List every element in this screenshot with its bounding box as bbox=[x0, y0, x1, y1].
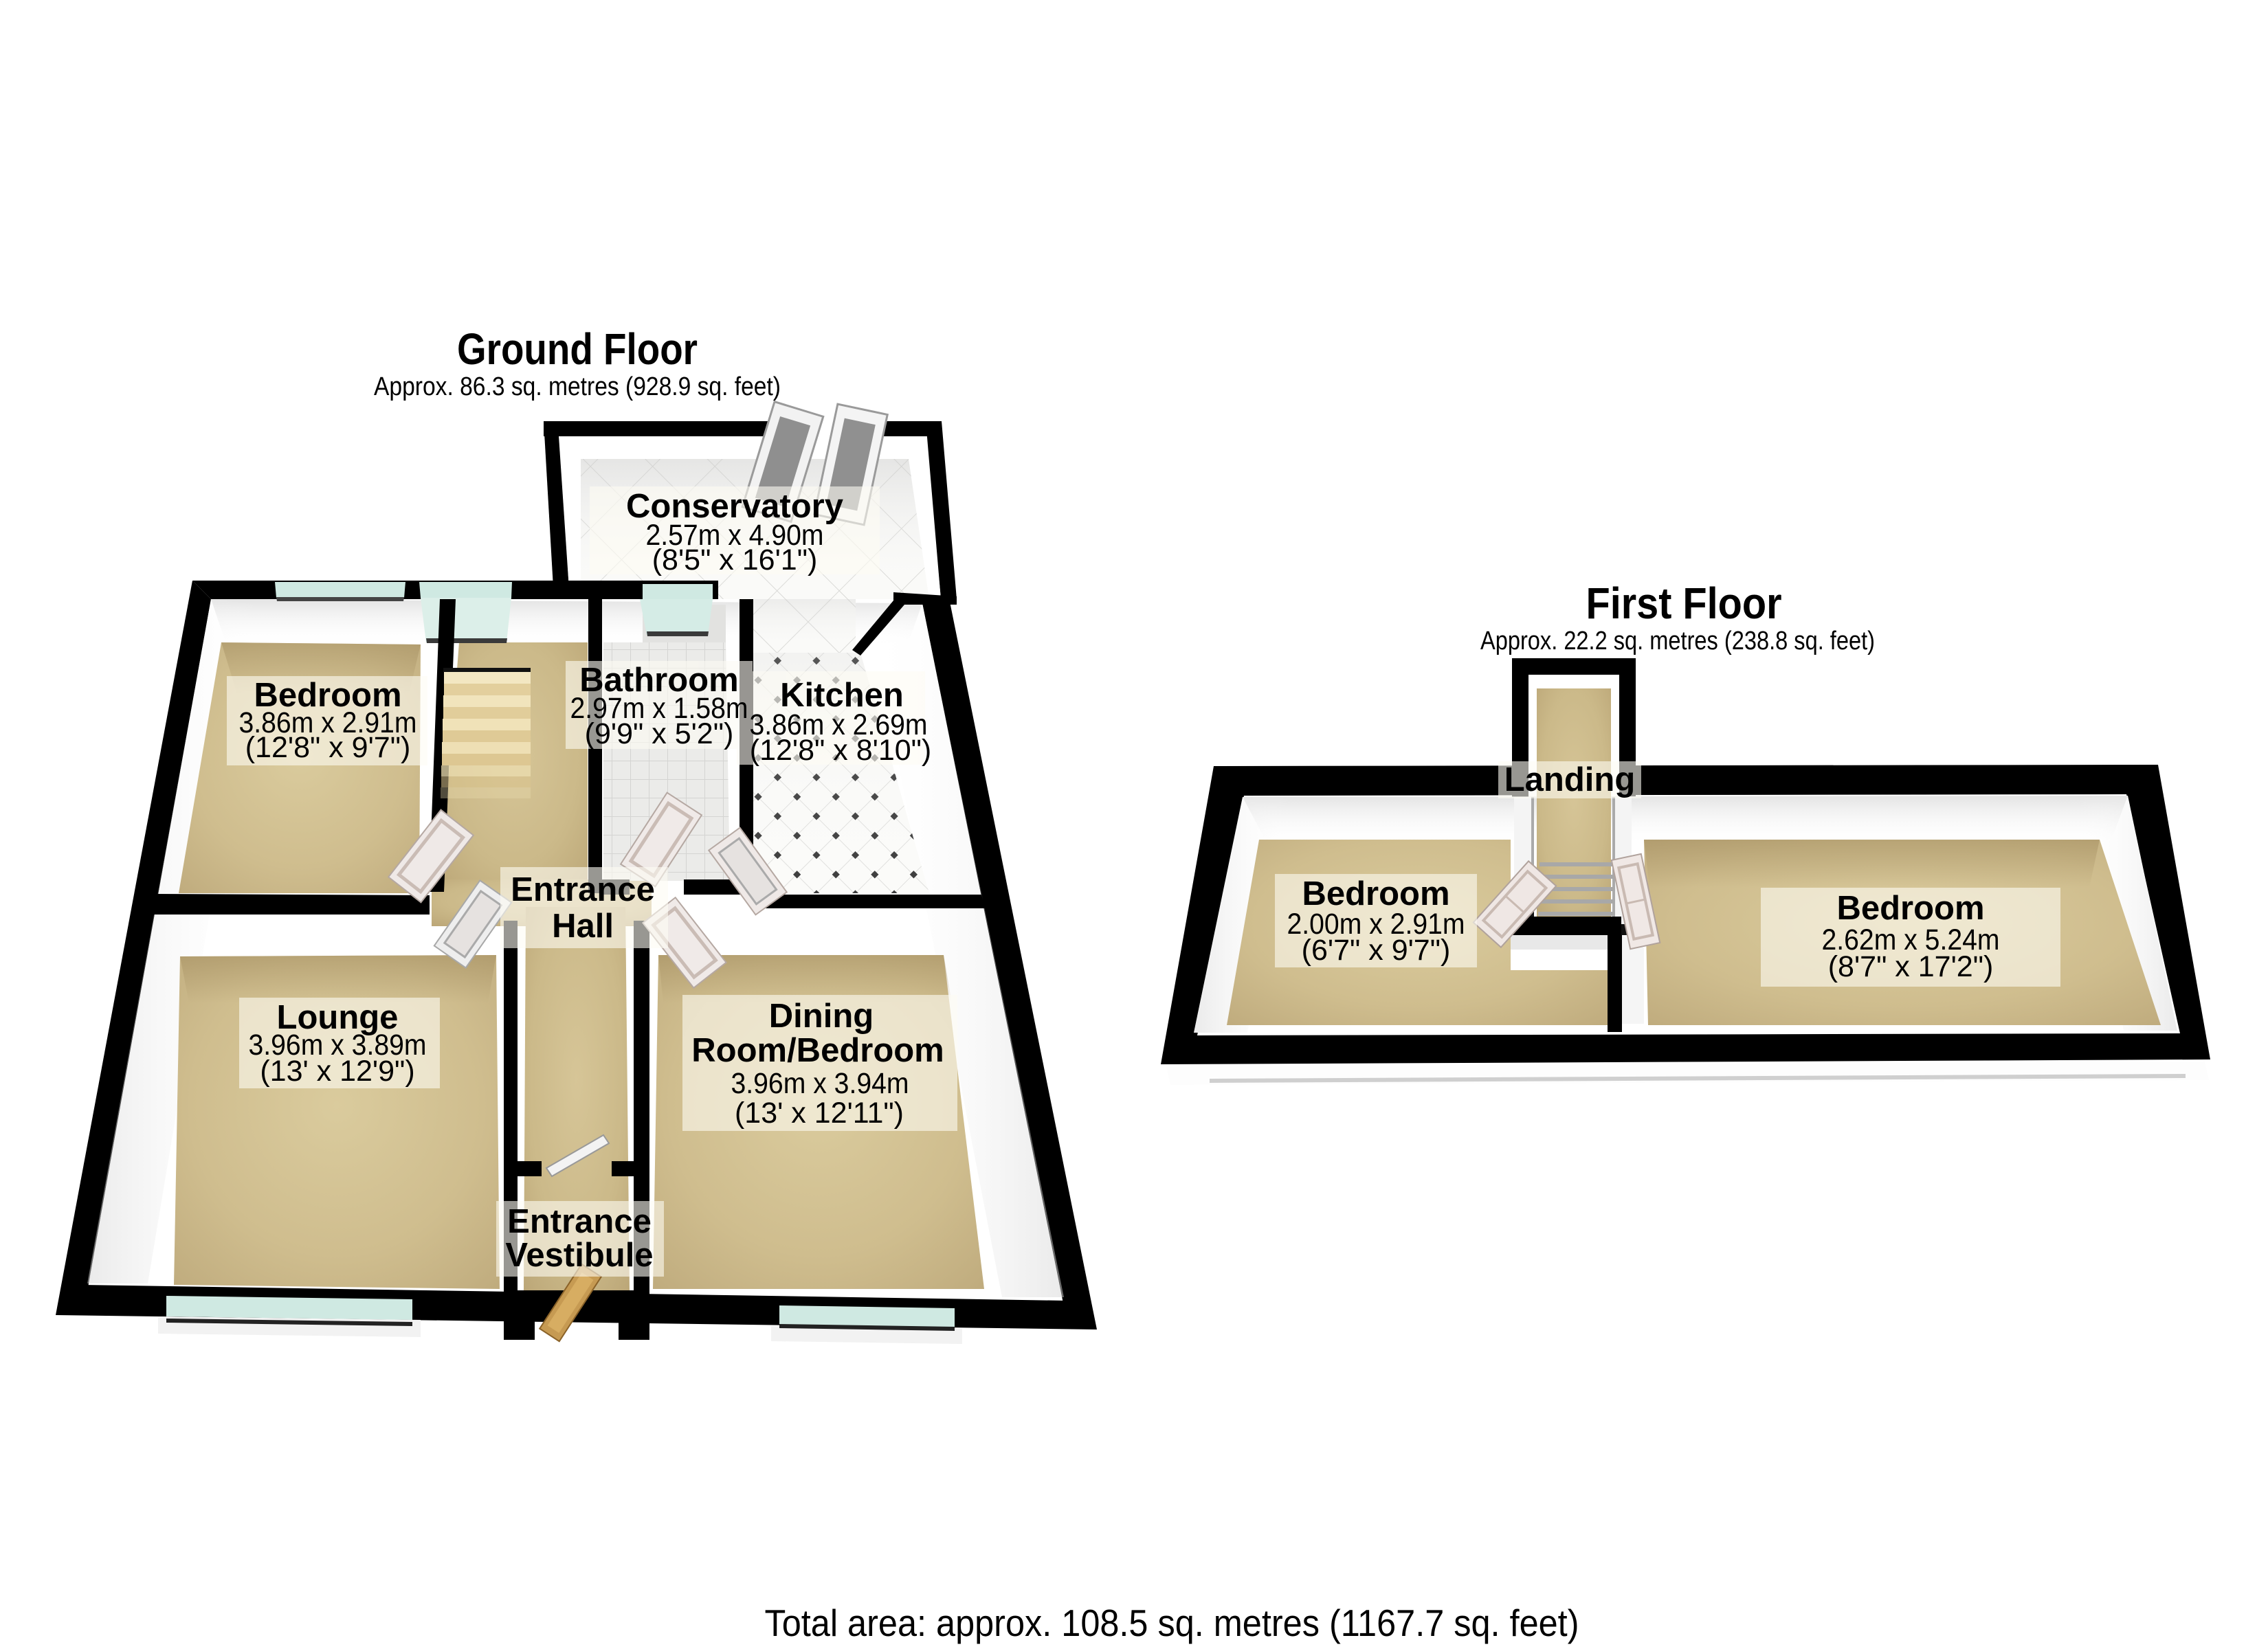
svg-text:3.96m x 3.94m: 3.96m x 3.94m bbox=[731, 1067, 909, 1100]
svg-text:(8'7" x 17'2"): (8'7" x 17'2") bbox=[1828, 950, 1994, 983]
svg-text:Landing: Landing bbox=[1504, 761, 1636, 798]
svg-text:Bedroom: Bedroom bbox=[1836, 890, 1984, 927]
svg-text:Vestibule: Vestibule bbox=[505, 1237, 653, 1274]
svg-text:(13' x 12'11"): (13' x 12'11") bbox=[735, 1097, 904, 1130]
svg-text:Hall: Hall bbox=[552, 908, 614, 945]
svg-text:Ground Floor: Ground Floor bbox=[457, 324, 698, 374]
svg-text:(12'8" x 8'10"): (12'8" x 8'10") bbox=[750, 734, 931, 767]
svg-text:Approx. 86.3 sq. metres (928.9: Approx. 86.3 sq. metres (928.9 sq. feet) bbox=[374, 372, 781, 401]
svg-text:Room/Bedroom: Room/Bedroom bbox=[691, 1032, 944, 1069]
svg-text:(6'7" x 9'7"): (6'7" x 9'7") bbox=[1302, 934, 1451, 967]
svg-text:Dining: Dining bbox=[769, 998, 874, 1035]
svg-text:(12'8" x 9'7"): (12'8" x 9'7") bbox=[245, 731, 411, 764]
svg-text:Bedroom: Bedroom bbox=[1302, 875, 1449, 912]
svg-text:First Floor: First Floor bbox=[1586, 579, 1782, 628]
svg-text:(13' x 12'9"): (13' x 12'9") bbox=[260, 1055, 414, 1088]
svg-text:(9'9" x 5'2"): (9'9" x 5'2") bbox=[585, 717, 734, 750]
svg-text:Entrance: Entrance bbox=[507, 1203, 652, 1240]
svg-text:(8'5" x 16'1"): (8'5" x 16'1") bbox=[652, 543, 818, 576]
svg-text:Approx. 22.2 sq. metres (238.8: Approx. 22.2 sq. metres (238.8 sq. feet) bbox=[1480, 627, 1875, 655]
svg-text:Entrance: Entrance bbox=[511, 871, 655, 908]
svg-text:Total area: approx. 108.5 sq.: Total area: approx. 108.5 sq. metres (11… bbox=[765, 1602, 1579, 1644]
